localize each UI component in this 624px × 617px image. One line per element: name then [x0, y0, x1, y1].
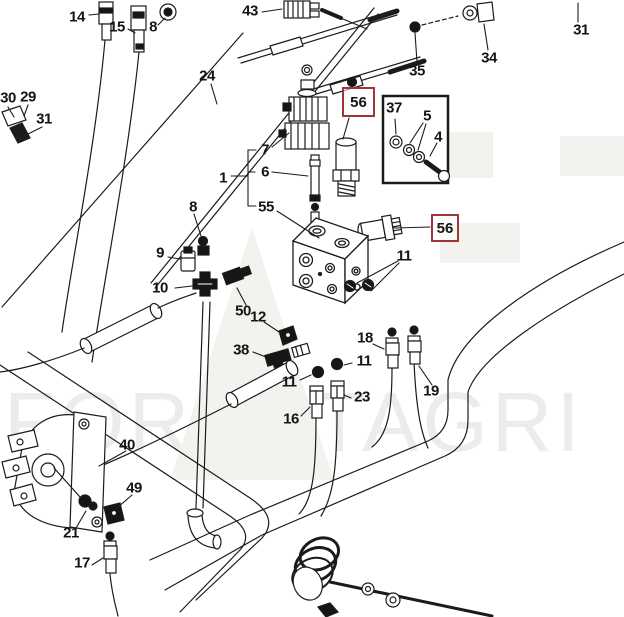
part-16-coupler: [310, 386, 323, 418]
part-7-solenoid: [279, 65, 329, 149]
part-callout-31-4: 31: [573, 23, 589, 38]
pump-assembly: [2, 412, 106, 532]
part-callout-6-12: 6: [261, 165, 269, 180]
part-callout-8-2: 8: [149, 20, 157, 35]
part-19-coupler: [408, 326, 421, 364]
part-callout-19-30: 19: [423, 384, 439, 399]
part-callout-11-27: 11: [282, 375, 297, 390]
part-callout-17-34: 17: [74, 556, 90, 571]
valve-block: [293, 218, 368, 303]
part-49: [104, 503, 124, 524]
part-callout-1-13: 1: [219, 171, 227, 186]
part-18-coupler: [386, 328, 399, 368]
knob-assembly: [279, 532, 492, 617]
part-callout-21-33: 21: [63, 526, 79, 541]
highlighted-callout-56-1: 56: [431, 214, 459, 242]
part-callout-43-3: 43: [242, 4, 258, 19]
part-35: [410, 22, 420, 32]
part-callout-50-21: 50: [235, 304, 251, 319]
part-callout-49-32: 49: [126, 481, 142, 496]
part-callout-23-28: 23: [354, 390, 370, 405]
parts-diagram: FORESTAGRI: [0, 0, 624, 617]
part-callout-12-22: 12: [250, 310, 266, 325]
part-callout-40-31: 40: [119, 438, 135, 453]
part-10: [193, 272, 217, 296]
cable-assembly: [270, 11, 458, 94]
part-17-coupler: [104, 532, 118, 616]
part-callout-38-23: 38: [233, 343, 249, 358]
part-callout-35-6: 35: [409, 64, 425, 79]
part-callout-30-8: 30: [0, 91, 16, 106]
part-8-mid: [198, 237, 209, 256]
part-9: [181, 247, 195, 271]
part-callout-34-5: 34: [481, 51, 497, 66]
part-43: [284, 1, 367, 29]
part-56-cartridge-vertical: [333, 138, 359, 196]
part-callout-11-24: 11: [397, 249, 412, 264]
part-callout-29-9: 29: [20, 90, 36, 105]
part-15: [131, 6, 146, 52]
part-callout-55-14: 55: [258, 200, 274, 215]
part-callout-8-15: 8: [189, 200, 197, 215]
part-callout-14-0: 14: [69, 10, 85, 25]
part-callout-9-19: 9: [156, 246, 164, 261]
part-callout-10-20: 10: [152, 281, 168, 296]
diagram-artwork: [0, 0, 624, 617]
part-callout-37-16: 37: [386, 101, 402, 116]
part-callout-24-7: 24: [199, 69, 215, 84]
part-callout-31-10: 31: [36, 112, 52, 127]
part-23-coupler: [331, 381, 344, 411]
part-34: [463, 2, 494, 22]
part-callout-7-11: 7: [261, 143, 269, 158]
part-callout-16-29: 16: [283, 412, 299, 427]
part-callout-4-18: 4: [434, 130, 442, 145]
part-callout-18-25: 18: [357, 331, 373, 346]
part-callout-15-1: 15: [109, 20, 125, 35]
part-callout-5-17: 5: [423, 109, 431, 124]
highlighted-callout-56-0: 56: [342, 87, 375, 117]
part-callout-11-26: 11: [357, 354, 372, 369]
part-8-top: [160, 4, 176, 20]
elbow-pipe: [187, 509, 221, 549]
